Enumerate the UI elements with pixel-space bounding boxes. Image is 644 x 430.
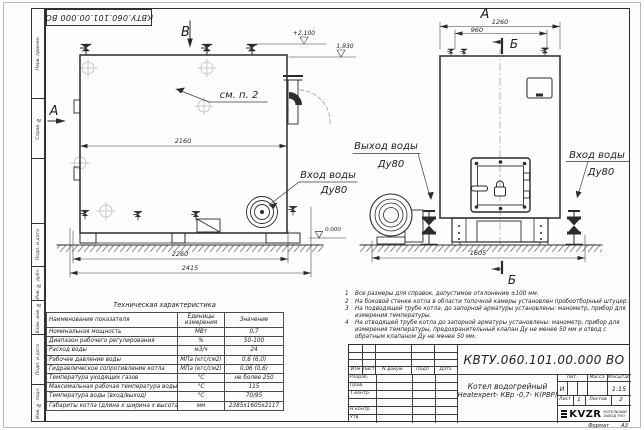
top-valve-icons	[81, 45, 257, 56]
door-hinge	[524, 191, 530, 198]
drain-box	[197, 219, 220, 232]
door-hinge	[524, 173, 530, 180]
elevation-top-value: +2,100	[293, 30, 315, 37]
rev-header: Дата	[434, 368, 457, 373]
target-mark-icon	[79, 59, 97, 77]
manufacturer-logo: KVZR КОТЕЛЬНЫЙЗАВОД РЭП	[557, 406, 631, 422]
svg-text:Б: Б	[510, 37, 518, 51]
table-row: Диапазон рабочего регулирования%50-100	[47, 337, 284, 346]
inlet-valve-assembly	[566, 211, 582, 245]
side-inlet-callout: Вход воды Ду80	[269, 170, 357, 209]
note-item: 2На боковой стенке котла в области топоч…	[345, 299, 635, 306]
lit-header: Лит.	[557, 376, 587, 381]
scale-value: 1:15	[607, 385, 631, 393]
elevation-pipe-mark	[289, 50, 356, 57]
note-item: 1Все размеры для справок, допустимое отк…	[345, 291, 635, 298]
mass-header: Масса	[587, 376, 607, 381]
tech-table: Наименование показателя Единицыизмерения…	[46, 312, 284, 411]
tech-table-block: Техническая характеристика Наименование …	[46, 299, 283, 411]
section-b-bottom: Б	[492, 262, 516, 287]
view-a-arrow	[48, 119, 64, 123]
svg-text:Выход воды: Выход воды	[354, 141, 418, 152]
furnace-door	[471, 158, 530, 212]
drawing-sheet: Перв. примен. Справ. № Подп. и дата Инв.…	[0, 0, 644, 430]
sheet-label: Лист	[557, 398, 573, 403]
table-row: Температура воды (вход/выход)°С70/95	[47, 392, 284, 401]
outlet-callout: Выход воды Ду80	[353, 141, 434, 200]
svg-text:Ду80: Ду80	[587, 167, 614, 178]
svg-text:Б: Б	[508, 273, 516, 287]
sheet-value: 1	[573, 398, 585, 403]
base-skid	[80, 233, 300, 243]
see-note-label: см. п. 2	[220, 90, 259, 101]
outlet-pipe-stub	[284, 76, 330, 124]
table-row: Рабочее давление водыМПа (кгс/см2)0,6 (6…	[47, 355, 284, 364]
zero-level-mark: 0.000	[309, 227, 346, 238]
elevation-top-mark	[256, 37, 326, 44]
door-handle	[472, 186, 488, 191]
note-item: 3На подводящей трубе котла, до запорной …	[345, 306, 635, 319]
drain-valve-icons	[81, 207, 297, 220]
section-b-top: Б	[493, 37, 518, 53]
table-row: Максимальная рабочая температура воды°С1…	[47, 383, 284, 392]
format-label: Формат	[588, 423, 609, 430]
tech-table-title: Техническая характеристика	[46, 299, 283, 312]
svg-text:960: 960	[471, 26, 483, 34]
notes-block: 1Все размеры для справок, допустимое отк…	[345, 291, 635, 341]
table-row: Температура уходящих газов°Сне более 250	[47, 373, 284, 382]
role-label: Разраб.	[350, 376, 368, 381]
blower-fan	[370, 194, 423, 244]
svg-text:2260: 2260	[172, 250, 189, 258]
role-label: Утв.	[350, 416, 360, 421]
svg-text:2160: 2160	[175, 137, 192, 145]
rev-header: Изм	[349, 368, 362, 373]
ground-hatch	[57, 245, 323, 252]
table-row: Габариты котла (длина х ширина х высота)…	[47, 401, 284, 410]
side-bracket	[74, 100, 80, 113]
col-name-header: Наименование показателя	[47, 313, 178, 328]
target-mark-icon	[97, 202, 115, 220]
title-block: Изм Лист N докум. Подп Дата КВТУ.060.101…	[348, 344, 630, 422]
col-units-header: Единицыизмерения	[178, 313, 225, 328]
svg-text:Вход воды: Вход воды	[300, 170, 356, 181]
svg-text:1260: 1260	[492, 18, 509, 26]
svg-text:0.000: 0.000	[325, 227, 341, 233]
table-row: Номинальная мощностьМВт0,7	[47, 328, 284, 337]
svg-text:Ду80: Ду80	[377, 159, 404, 170]
rev-header: N докум.	[375, 368, 411, 373]
table-row: Расход водым3/ч24	[47, 346, 284, 355]
role-label: Т.контр.	[350, 392, 370, 397]
svg-text:Ду80: Ду80	[320, 185, 347, 196]
lit-value: И	[557, 385, 567, 393]
rev-header: Лист	[362, 368, 375, 373]
front-view-label: А	[480, 7, 490, 22]
company-name: КОТЕЛЬНЫЙЗАВОД РЭП	[603, 410, 626, 418]
junction-box	[527, 78, 552, 98]
svg-text:1605: 1605	[470, 249, 487, 257]
dimension-2160: 2160	[80, 137, 287, 148]
tech-table-header: Наименование показателя Единицыизмерения…	[47, 313, 284, 328]
logo-bars-icon	[561, 410, 567, 418]
svg-text:2415: 2415	[182, 264, 199, 272]
logo-text: KVZR	[569, 409, 601, 420]
format-value: А3	[621, 423, 628, 430]
view-b-label: В	[181, 25, 190, 40]
role-label: Пров.	[350, 384, 364, 389]
table-row: Гидравлическое сопротивление котлаМПа (к…	[47, 364, 284, 373]
rev-header: Подп	[411, 368, 434, 373]
inlet-flange	[247, 197, 278, 228]
note-item: 4На отводящей трубе котла до запорной ар…	[345, 320, 635, 340]
front-inlet-callout: Вход воды Ду80	[566, 150, 629, 198]
title-doc-number: КВТУ.060.101.00.000 ВО	[458, 345, 630, 374]
elevation-pipe-value: 1,930	[336, 43, 353, 50]
col-value-header: Значение	[225, 313, 284, 328]
role-label: Н.контр.	[350, 408, 371, 413]
front-top-valve-icons	[447, 48, 548, 56]
door-bolts	[475, 160, 527, 210]
view-a-label: А	[49, 104, 59, 119]
format-note: Формат А3	[500, 423, 631, 430]
scale-header: Масштаб	[607, 376, 631, 381]
target-mark-icon	[198, 59, 216, 77]
side-view: В +2,100 1,930 см. п. 2	[48, 21, 434, 277]
sheets-value: 2	[611, 398, 631, 403]
sheets-label: Листов	[585, 398, 611, 403]
product-name: Котел водогрейный Heatexpert- КВр -0,7- …	[458, 375, 557, 422]
svg-text:Вход воды: Вход воды	[569, 150, 625, 161]
